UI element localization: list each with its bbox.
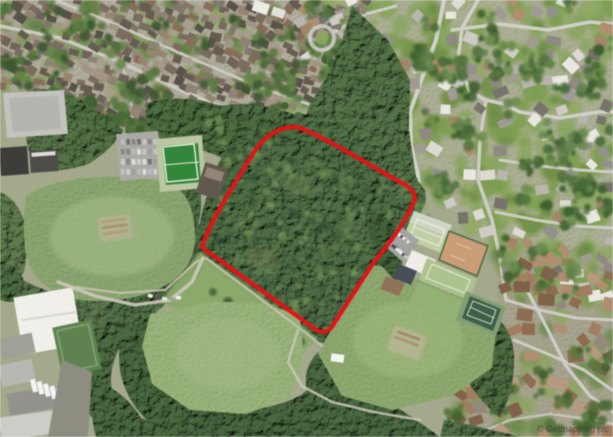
svg-text:© Getmapping plc: © Getmapping plc <box>537 424 610 434</box>
